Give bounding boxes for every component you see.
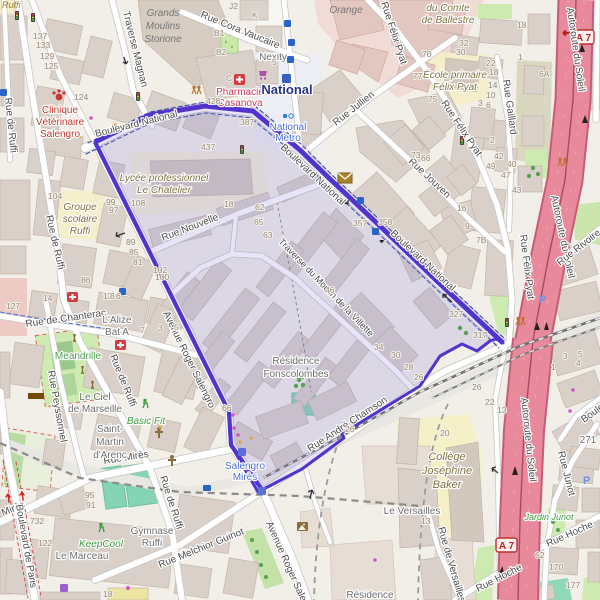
svg-text:34: 34: [374, 342, 384, 352]
svg-text:Résidence: Résidence: [346, 590, 394, 600]
svg-text:B1: B1: [214, 28, 225, 38]
svg-text:65: 65: [254, 217, 264, 227]
svg-text:40: 40: [507, 159, 517, 169]
svg-text:Clinique: Clinique: [42, 105, 79, 116]
svg-text:Collège: Collège: [428, 451, 465, 463]
svg-text:177: 177: [566, 580, 580, 590]
svg-text:Saint-: Saint-: [97, 424, 123, 435]
svg-text:170: 170: [549, 562, 563, 572]
svg-text:14: 14: [488, 80, 498, 90]
svg-text:National: National: [261, 82, 312, 97]
svg-text:Casanova: Casanova: [217, 98, 262, 109]
svg-text:97: 97: [109, 205, 119, 215]
svg-text:2: 2: [490, 135, 495, 145]
svg-text:129: 129: [40, 51, 54, 61]
svg-text:86: 86: [81, 275, 91, 285]
svg-text:89: 89: [126, 237, 136, 247]
svg-text:8: 8: [110, 291, 115, 301]
svg-text:26: 26: [414, 372, 424, 382]
svg-text:Joséphine: Joséphine: [421, 465, 472, 477]
svg-text:127: 127: [6, 301, 20, 311]
svg-text:18: 18: [224, 199, 234, 209]
svg-text:Mirès: Mirès: [233, 472, 257, 483]
svg-text:Basic Fit: Basic Fit: [127, 416, 167, 427]
svg-text:Groupe: Groupe: [63, 202, 97, 213]
svg-text:95: 95: [85, 490, 95, 500]
svg-text:18: 18: [103, 589, 113, 599]
svg-text:Martin: Martin: [96, 437, 124, 448]
svg-text:d'Arenc: d'Arenc: [93, 450, 127, 461]
svg-text:Jardin Junot: Jardin Junot: [523, 512, 574, 522]
svg-text:22: 22: [485, 397, 495, 407]
svg-text:Salengro: Salengro: [225, 461, 265, 472]
svg-text:357: 357: [353, 218, 367, 228]
svg-text:14: 14: [43, 293, 53, 303]
svg-text:Storione: Storione: [144, 34, 182, 45]
svg-text:J2: J2: [229, 1, 238, 11]
svg-text:62: 62: [535, 550, 545, 560]
svg-text:Bat A: Bat A: [105, 327, 129, 338]
svg-text:Gymnase: Gymnase: [131, 526, 174, 537]
svg-text:327: 327: [449, 309, 463, 319]
svg-text:A 7: A 7: [499, 541, 515, 552]
svg-text:732: 732: [30, 516, 44, 526]
svg-text:358: 358: [378, 217, 392, 227]
svg-text:scolaire: scolaire: [63, 214, 98, 225]
svg-text:30: 30: [456, 47, 466, 57]
svg-text:L'Alize: L'Alize: [102, 315, 132, 326]
svg-text:13: 13: [497, 405, 507, 415]
svg-text:Salengro: Salengro: [40, 129, 80, 140]
svg-text:18: 18: [489, 67, 499, 77]
svg-text:Metro: Metro: [275, 133, 301, 144]
svg-text:387: 387: [240, 117, 254, 127]
svg-text:Ruffi: Ruffi: [2, 0, 22, 10]
svg-text:271: 271: [580, 435, 597, 446]
svg-text:Vétérinaire: Vétérinaire: [36, 117, 85, 128]
svg-text:16: 16: [457, 203, 467, 213]
svg-text:4: 4: [576, 358, 581, 368]
svg-text:Meandrille: Meandrille: [55, 351, 102, 362]
svg-text:13: 13: [421, 516, 431, 526]
svg-text:85: 85: [129, 247, 139, 257]
svg-text:C: C: [226, 73, 232, 83]
svg-text:42: 42: [494, 151, 504, 161]
svg-text:66: 66: [222, 403, 232, 413]
svg-text:Moulins: Moulins: [146, 21, 180, 32]
svg-text:1: 1: [518, 52, 523, 62]
svg-text:108: 108: [131, 198, 145, 208]
svg-text:122: 122: [38, 538, 52, 548]
svg-text:91: 91: [86, 500, 96, 510]
svg-text:5: 5: [272, 57, 277, 67]
svg-text:École primaire: École primaire: [423, 68, 487, 81]
svg-text:3: 3: [563, 351, 568, 361]
svg-text:28: 28: [404, 362, 414, 372]
svg-text:Ruffi: Ruffi: [142, 538, 162, 549]
svg-text:Fonscolombes: Fonscolombes: [263, 369, 328, 380]
svg-text:20: 20: [440, 428, 450, 438]
svg-text:66: 66: [421, 153, 431, 163]
svg-text:de Ballestre: de Ballestre: [422, 15, 475, 26]
svg-text:428: 428: [206, 96, 220, 106]
svg-text:6: 6: [116, 291, 121, 301]
svg-text:6A: 6A: [539, 69, 550, 79]
svg-text:70: 70: [422, 49, 432, 59]
svg-text:Ruffi: Ruffi: [70, 226, 91, 237]
svg-text:Le Ciel: Le Ciel: [79, 392, 110, 403]
svg-text:133: 133: [36, 40, 50, 50]
svg-text:KeepCool: KeepCool: [79, 539, 124, 550]
svg-text:6: 6: [486, 100, 491, 110]
svg-text:18: 18: [517, 20, 527, 30]
svg-text:26: 26: [345, 424, 355, 434]
svg-text:B2: B2: [216, 47, 227, 57]
svg-text:Résidence: Résidence: [272, 356, 320, 367]
svg-text:P: P: [583, 475, 590, 487]
svg-text:K: K: [252, 10, 258, 20]
svg-text:Orange: Orange: [329, 5, 363, 16]
svg-text:437: 437: [201, 142, 215, 152]
svg-text:73: 73: [411, 150, 421, 160]
svg-text:5: 5: [174, 322, 179, 332]
svg-text:National: National: [270, 122, 307, 133]
svg-text:30: 30: [391, 350, 401, 360]
svg-text:Le Marceau: Le Marceau: [56, 551, 109, 562]
svg-text:P: P: [539, 294, 546, 306]
svg-text:7B: 7B: [476, 235, 487, 245]
svg-text:124: 124: [74, 92, 88, 102]
svg-text:77: 77: [413, 71, 423, 81]
svg-text:75: 75: [428, 94, 438, 104]
svg-text:125: 125: [44, 61, 58, 71]
svg-text:Grands: Grands: [147, 8, 180, 19]
svg-text:Lycée professionnel: Lycée professionnel: [120, 173, 210, 184]
svg-text:Le Versailles: Le Versailles: [384, 506, 441, 517]
svg-text:43: 43: [512, 185, 522, 195]
svg-text:Le Chatelier: Le Chatelier: [137, 185, 192, 196]
svg-text:47: 47: [501, 170, 511, 180]
svg-text:Pharmacie: Pharmacie: [216, 87, 264, 98]
svg-text:de Marseille: de Marseille: [68, 404, 122, 415]
svg-text:100: 100: [155, 272, 169, 282]
svg-text:9: 9: [465, 221, 470, 231]
svg-text:49: 49: [486, 161, 496, 171]
svg-text:46: 46: [325, 285, 335, 295]
svg-text:26: 26: [472, 382, 482, 392]
svg-text:3: 3: [158, 323, 163, 333]
svg-text:7: 7: [140, 325, 145, 335]
svg-text:81: 81: [133, 257, 143, 267]
svg-text:Félix Pyat: Félix Pyat: [433, 82, 478, 93]
svg-text:Baker: Baker: [433, 479, 463, 491]
svg-text:du Comte: du Comte: [426, 3, 470, 14]
svg-text:3: 3: [478, 98, 483, 108]
svg-text:317: 317: [473, 330, 487, 340]
svg-text:62: 62: [255, 202, 265, 212]
svg-text:104: 104: [48, 191, 62, 201]
svg-text:63: 63: [263, 230, 273, 240]
svg-text:1: 1: [551, 362, 556, 372]
svg-text:10: 10: [486, 90, 496, 100]
